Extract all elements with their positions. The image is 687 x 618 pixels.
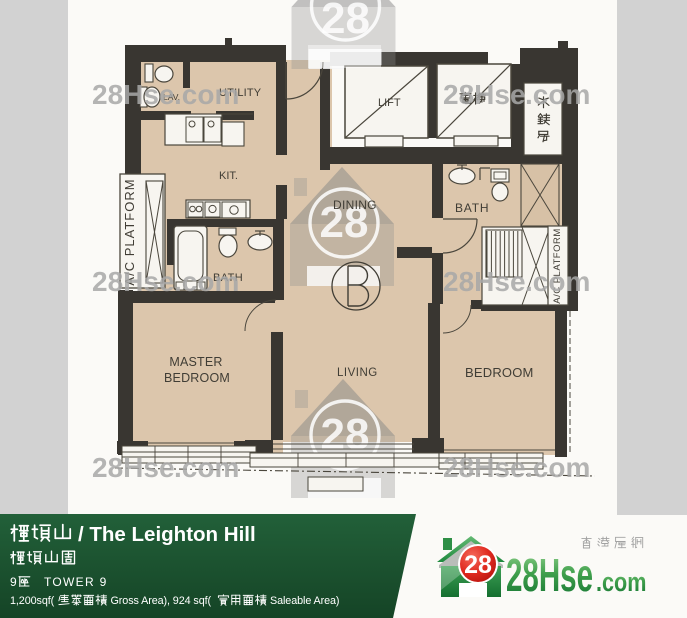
svg-text:.com: .com <box>174 452 239 483</box>
svg-text:/ The Leighton Hill: / The Leighton Hill <box>78 523 256 546</box>
svg-text:.com: .com <box>525 266 590 297</box>
svg-text:28: 28 <box>321 410 370 459</box>
svg-text:28: 28 <box>321 0 370 43</box>
svg-text:28Hse: 28Hse <box>506 551 593 602</box>
svg-text:Saleable Area): Saleable Area) <box>270 595 339 607</box>
svg-text:KIT.: KIT. <box>219 170 238 182</box>
svg-text:28Hse: 28Hse <box>92 266 175 297</box>
svg-text:BEDROOM: BEDROOM <box>164 371 230 385</box>
svg-text:.com: .com <box>525 79 590 110</box>
svg-text:28: 28 <box>464 551 492 579</box>
svg-text:.com: .com <box>596 568 646 598</box>
svg-text:28Hse: 28Hse <box>443 266 526 297</box>
svg-text:28Hse: 28Hse <box>443 452 526 483</box>
svg-text:Gross Area), 924 sqf(: Gross Area), 924 sqf( <box>111 595 212 607</box>
svg-text:28Hse: 28Hse <box>443 79 526 110</box>
svg-text:.com: .com <box>174 79 239 110</box>
svg-text:MASTER: MASTER <box>169 355 222 369</box>
svg-text:LIVING: LIVING <box>337 367 378 379</box>
svg-text:.com: .com <box>174 266 239 297</box>
svg-text:28Hse: 28Hse <box>92 79 175 110</box>
svg-text:1,200sqf(: 1,200sqf( <box>10 595 55 607</box>
svg-text:BEDROOM: BEDROOM <box>465 365 534 380</box>
svg-text:.com: .com <box>525 452 590 483</box>
svg-text:TOWER 9: TOWER 9 <box>44 575 108 589</box>
svg-text:DINING: DINING <box>333 198 377 212</box>
svg-text:9: 9 <box>10 575 17 589</box>
svg-text:LIFT: LIFT <box>378 97 401 109</box>
svg-text:28Hse: 28Hse <box>92 452 175 483</box>
svg-text:BATH: BATH <box>455 201 489 215</box>
